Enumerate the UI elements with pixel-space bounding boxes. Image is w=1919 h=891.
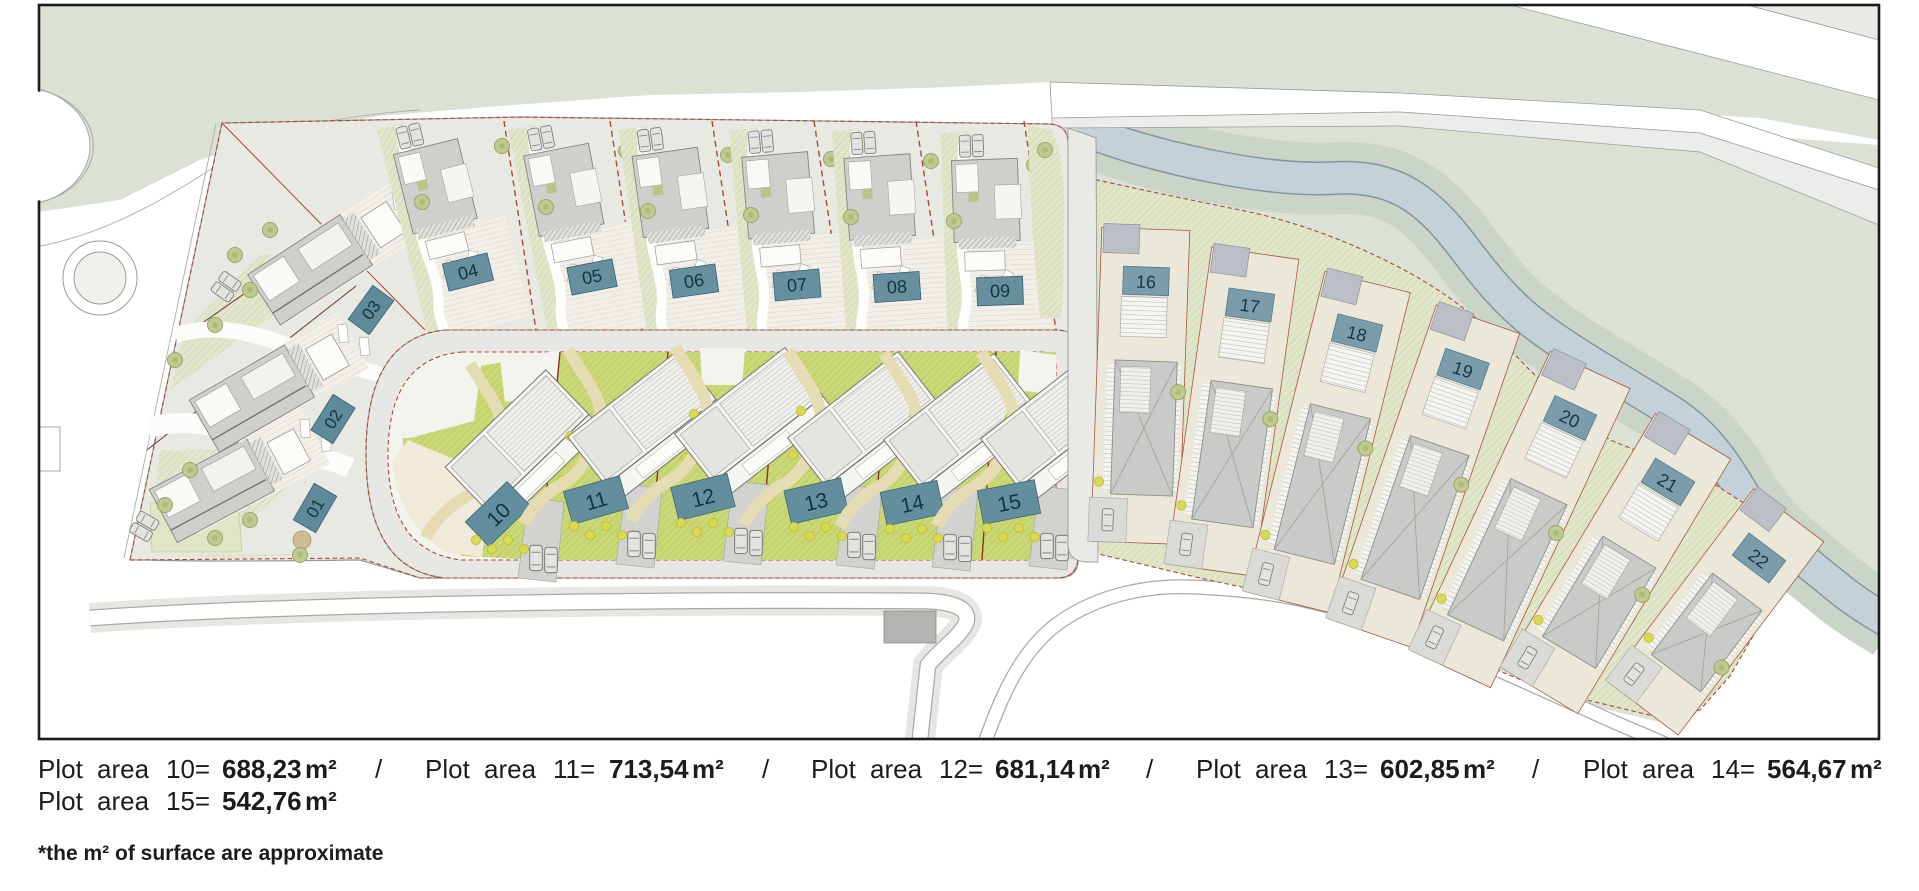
svg-text:15: 15 bbox=[996, 490, 1023, 517]
svg-text:06: 06 bbox=[683, 270, 706, 293]
svg-text:08: 08 bbox=[886, 276, 907, 297]
svg-text:16: 16 bbox=[1136, 272, 1157, 293]
svg-text:09: 09 bbox=[990, 281, 1011, 302]
svg-text:07: 07 bbox=[786, 274, 808, 296]
svg-text:17: 17 bbox=[1239, 295, 1262, 318]
svg-text:05: 05 bbox=[580, 265, 603, 288]
